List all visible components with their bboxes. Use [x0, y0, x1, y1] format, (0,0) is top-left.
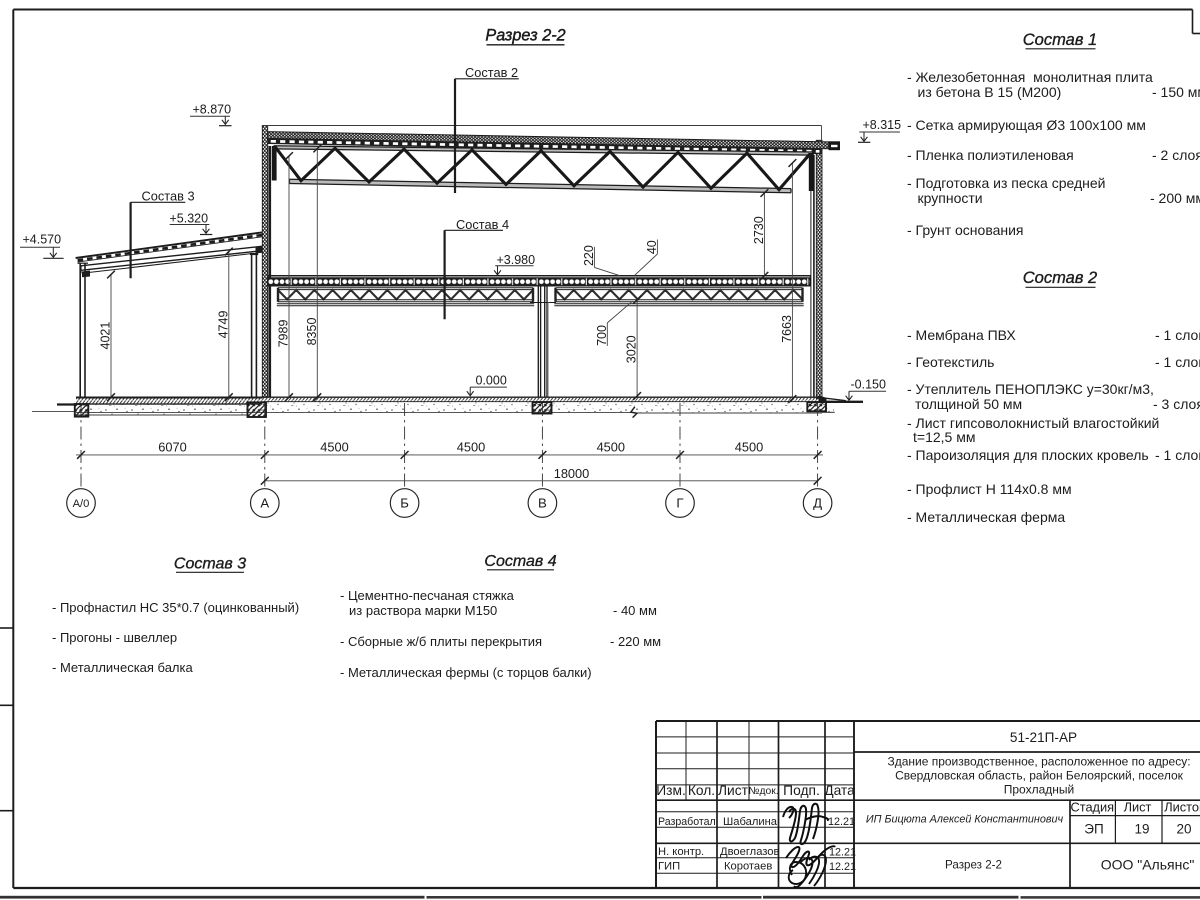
svg-text:Состав 2: Состав 2: [465, 65, 518, 80]
svg-text:из раствора марки М150: из раствора марки М150: [349, 603, 497, 618]
svg-text:- Прогоны - швеллер: - Прогоны - швеллер: [52, 630, 177, 645]
svg-text:- Профлист Н 114х0.8 мм: - Профлист Н 114х0.8 мм: [907, 481, 1072, 497]
svg-text:Подп.: Подп.: [783, 783, 820, 798]
svg-text:4500: 4500: [735, 440, 763, 455]
svg-text:крупности: крупности: [918, 190, 983, 206]
svg-text:Состав 3: Состав 3: [142, 188, 195, 203]
svg-text:из бетона В 15 (М200): из бетона В 15 (М200): [918, 84, 1062, 100]
svg-text:- Грунт основания: - Грунт основания: [907, 222, 1024, 238]
svg-text:12.21: 12.21: [829, 861, 856, 873]
svg-text:В: В: [538, 496, 547, 511]
svg-text:Д: Д: [813, 496, 822, 511]
svg-text:Изм.: Изм.: [656, 783, 686, 798]
svg-text:-0.150: -0.150: [851, 377, 886, 391]
svg-text:t=12,5 мм: t=12,5 мм: [913, 429, 975, 445]
svg-text:4500: 4500: [597, 440, 625, 455]
svg-text:+8.870: +8.870: [193, 103, 232, 117]
svg-text:- 3 слоя: - 3 слоя: [1153, 396, 1200, 412]
svg-text:7663: 7663: [780, 315, 794, 343]
svg-text:Прохладный: Прохладный: [1004, 783, 1074, 797]
svg-text:Кол.: Кол.: [688, 783, 715, 798]
svg-text:ИП Бицюта Алексей Константинов: ИП Бицюта Алексей Константинович: [866, 814, 1064, 826]
svg-text:Здание производственное, распо: Здание производственное, расположенное п…: [887, 755, 1190, 769]
svg-text:7989: 7989: [277, 320, 291, 348]
svg-text:12.21: 12.21: [829, 847, 856, 859]
svg-text:- Мембрана ПВХ: - Мембрана ПВХ: [907, 327, 1016, 343]
svg-text:- Сетка армирующая Ø3 100х100: - Сетка армирующая Ø3 100х100 мм: [907, 117, 1146, 133]
svg-text:19: 19: [1134, 822, 1149, 837]
svg-text:толщиной 50 мм: толщиной 50 мм: [915, 396, 1022, 412]
svg-text:ЭП: ЭП: [1084, 822, 1103, 837]
svg-text:8350: 8350: [305, 318, 319, 346]
svg-text:- Подготовка из песка средней: - Подготовка из песка средней: [907, 175, 1106, 191]
svg-text:А: А: [260, 496, 269, 511]
svg-text:18000: 18000: [554, 466, 590, 481]
svg-text:Состав 4: Состав 4: [484, 553, 556, 570]
svg-text:- 1 слой: - 1 слой: [1155, 447, 1200, 463]
svg-text:6070: 6070: [158, 440, 186, 455]
svg-text:Разрез 2-2: Разрез 2-2: [485, 27, 565, 45]
svg-text:- 1 слой: - 1 слой: [1155, 354, 1200, 370]
svg-text:Разрез 2-2: Разрез 2-2: [945, 859, 1002, 872]
svg-text:- 200 мм: - 200 мм: [1150, 190, 1200, 206]
svg-text:- Пароизоляция для плоских кро: - Пароизоляция для плоских кровель: [907, 447, 1149, 463]
svg-text:- Цементно-песчаная стяжка: - Цементно-песчаная стяжка: [340, 588, 515, 603]
svg-text:ГИП: ГИП: [658, 861, 680, 873]
svg-text:Состав 3: Состав 3: [174, 556, 246, 573]
svg-text:- Сборные ж/б плиты перекрытия: - Сборные ж/б плиты перекрытия: [340, 634, 542, 649]
svg-text:Лист: Лист: [1124, 800, 1152, 815]
svg-text:+3.980: +3.980: [497, 253, 536, 267]
svg-text:Состав 2: Состав 2: [1023, 269, 1097, 287]
svg-text:+8.315: +8.315: [863, 118, 902, 132]
svg-text:- Утеплитель ПЕНОПЛЭКС y=30кг/: - Утеплитель ПЕНОПЛЭКС y=30кг/м3,: [907, 381, 1154, 397]
svg-text:0.000: 0.000: [476, 373, 507, 387]
svg-text:2730: 2730: [752, 216, 766, 244]
svg-text:- Металлическая балка: - Металлическая балка: [52, 660, 193, 675]
svg-text:+4.570: +4.570: [23, 232, 62, 246]
svg-text:Г: Г: [676, 496, 683, 511]
svg-text:Н. контр.: Н. контр.: [658, 846, 704, 858]
svg-text:4500: 4500: [457, 440, 485, 455]
svg-text:Коротаев: Коротаев: [724, 861, 772, 873]
svg-text:Дата: Дата: [824, 783, 855, 798]
svg-text:3020: 3020: [625, 335, 639, 363]
svg-text:Листов: Листов: [1164, 800, 1200, 815]
svg-text:- 150 мм: - 150 мм: [1152, 84, 1200, 100]
svg-text:- Профнастил НС 35*0.7 (оцинко: - Профнастил НС 35*0.7 (оцинкованный): [52, 600, 299, 615]
svg-text:Стадия: Стадия: [1070, 800, 1114, 815]
svg-text:- Металлическая ферма: - Металлическая ферма: [907, 509, 1065, 525]
svg-text:- 40 мм: - 40 мм: [613, 603, 657, 618]
svg-text:- Геотекстиль: - Геотекстиль: [907, 354, 994, 370]
svg-text:Разработал: Разработал: [658, 816, 716, 828]
svg-text:- 1 слой: - 1 слой: [1155, 327, 1200, 343]
svg-text:А/0: А/0: [73, 498, 90, 510]
svg-text:40: 40: [645, 240, 659, 254]
svg-text:Свердловская область, район Бе: Свердловская область, район Белоярский, …: [895, 769, 1184, 783]
svg-text:- Пленка полиэтиленовая: - Пленка полиэтиленовая: [907, 147, 1074, 163]
svg-text:- 2 слоя: - 2 слоя: [1152, 147, 1200, 163]
svg-text:4021: 4021: [99, 322, 113, 350]
svg-text:- Металлическая фермы (с торцо: - Металлическая фермы (с торцов балки): [340, 665, 592, 680]
svg-text:Шабалина: Шабалина: [723, 816, 778, 828]
svg-text:4749: 4749: [216, 311, 230, 339]
svg-text:ООО "Альянс": ООО "Альянс": [1101, 857, 1195, 873]
svg-text:- 220 мм: - 220 мм: [610, 634, 661, 649]
svg-text:+5.320: +5.320: [170, 212, 209, 226]
svg-text:Б: Б: [400, 496, 409, 511]
svg-text:51-21П-АР: 51-21П-АР: [1010, 730, 1077, 745]
svg-text:4500: 4500: [320, 440, 348, 455]
svg-text:20: 20: [1176, 822, 1191, 837]
svg-text:700: 700: [595, 325, 609, 346]
svg-text:№док.: №док.: [748, 786, 778, 797]
svg-text:Двоеглазов: Двоеглазов: [720, 846, 780, 858]
svg-text:Лист: Лист: [718, 783, 749, 798]
svg-text:- Железобетонная монолитная п: - Железобетонная монолитная плита: [907, 69, 1153, 85]
svg-text:12.21: 12.21: [828, 816, 855, 828]
svg-text:Состав 1: Состав 1: [1023, 31, 1097, 49]
svg-text:220: 220: [582, 245, 596, 266]
